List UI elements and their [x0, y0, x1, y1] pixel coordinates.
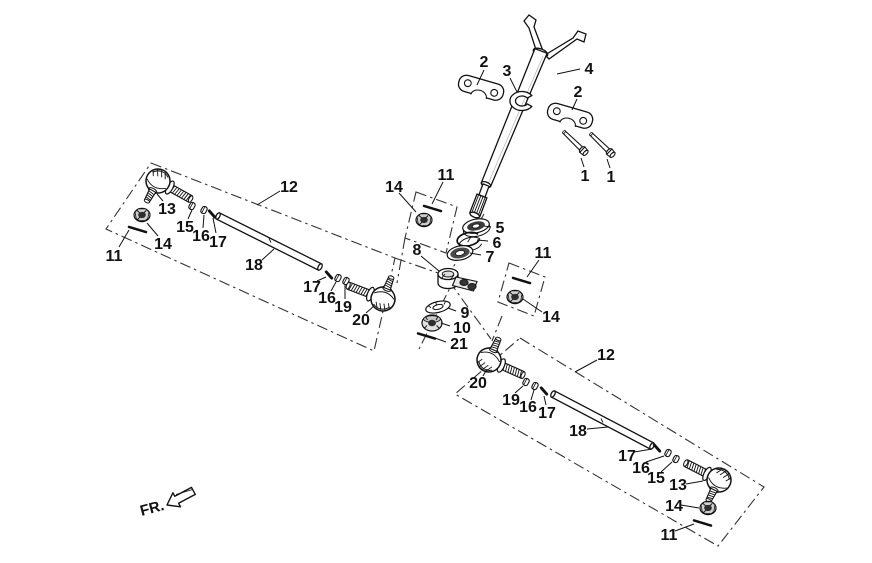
callout-part-4: 4 — [585, 61, 594, 78]
phantom-lines — [106, 163, 764, 546]
callout-part-19a: 19 — [334, 299, 352, 316]
callout-part-2a: 2 — [480, 54, 489, 71]
fork-left-prong — [524, 15, 543, 53]
callout-part-15b: 15 — [647, 470, 665, 487]
flange-nut-14 — [507, 290, 523, 303]
diagram-canvas: 2 3 4 2 1 1 5 6 7 8 9 10 21 11 14 11 14 … — [0, 0, 872, 563]
callout-part-10: 10 — [453, 320, 471, 337]
callout-part-11a: 11 — [438, 167, 455, 184]
callout-part-11b: 11 — [535, 245, 552, 262]
callout-part-11d: 11 — [661, 527, 678, 544]
callout-part-1a: 1 — [581, 168, 590, 185]
front-direction-indicator: FR. — [138, 487, 195, 519]
callout-part-8: 8 — [413, 242, 422, 259]
callout-part-14c: 14 — [154, 236, 172, 253]
callout-part-20a: 20 — [352, 312, 370, 329]
callout-part-20b: 20 — [469, 375, 487, 392]
flange-nut-14 — [416, 213, 432, 226]
cotter-pin-11 — [129, 227, 146, 232]
bush-16 — [334, 274, 342, 283]
callout-part-21: 21 — [450, 336, 468, 353]
fastener-set-left — [416, 206, 441, 227]
washer-9 — [425, 299, 452, 316]
cotter-pin-11 — [513, 278, 530, 283]
tie-rod-18 — [550, 390, 655, 450]
castle-nut-10 — [422, 315, 442, 331]
callout-part-18a: 18 — [245, 257, 263, 274]
callout-part-13a: 13 — [158, 201, 176, 218]
callout-part-13b: 13 — [669, 477, 687, 494]
flange-bolt-right — [588, 131, 617, 159]
pin-17 — [541, 388, 546, 394]
holder-bracket-left — [456, 73, 505, 103]
pin-17 — [654, 445, 659, 451]
bush-16 — [664, 449, 672, 458]
bush-15 — [672, 455, 680, 464]
flange-bolt-left — [561, 129, 590, 157]
flange-nut-14 — [700, 501, 716, 514]
callout-part-14d: 14 — [665, 498, 683, 515]
fastener-set-right — [507, 278, 530, 304]
callout-part-7: 7 — [486, 249, 495, 266]
front-label: FR. — [138, 497, 166, 520]
steering-stem-bracket-8 — [438, 269, 477, 292]
callout-part-19b: 19 — [502, 392, 520, 409]
holder-bracket-right — [545, 101, 594, 131]
flange-nut-14 — [134, 208, 150, 221]
callout-part-14b: 14 — [542, 309, 560, 326]
callout-part-16c: 16 — [519, 399, 537, 416]
callout-part-17c: 17 — [538, 405, 556, 422]
bush-19 — [522, 378, 530, 387]
callout-part-1b: 1 — [607, 169, 616, 186]
callout-part-17a: 17 — [209, 234, 227, 251]
pin-17 — [326, 272, 331, 278]
callout-part-3: 3 — [503, 63, 512, 80]
bush-16 — [531, 382, 539, 391]
cotter-pin-11 — [424, 206, 441, 211]
steering-column-assembly — [456, 15, 616, 219]
cotter-pin-11 — [694, 520, 711, 525]
dust-seal-washer-5 — [461, 217, 491, 239]
tie-rod-18 — [215, 212, 323, 271]
callout-part-12a: 12 — [280, 179, 298, 196]
callout-part-11c: 11 — [106, 248, 123, 265]
bush-15 — [188, 202, 196, 211]
callout-part-16a: 16 — [192, 228, 210, 245]
callout-part-12b: 12 — [597, 347, 615, 364]
callout-labels: 2 3 4 2 1 1 5 6 7 8 9 10 21 11 14 11 14 … — [106, 54, 687, 544]
callout-part-18b: 18 — [569, 423, 587, 440]
exploded-parts-diagram: 2 3 4 2 1 1 5 6 7 8 9 10 21 11 14 11 14 … — [0, 0, 872, 563]
leader-lines — [119, 69, 703, 531]
callout-part-2b: 2 — [574, 84, 583, 101]
pin-17 — [209, 211, 214, 217]
box-to-bracket-line — [395, 258, 441, 274]
fork-right-prong — [545, 31, 586, 59]
callout-part-14a: 14 — [385, 179, 403, 196]
bush-16 — [200, 206, 208, 215]
fastener-box-right — [498, 263, 545, 316]
